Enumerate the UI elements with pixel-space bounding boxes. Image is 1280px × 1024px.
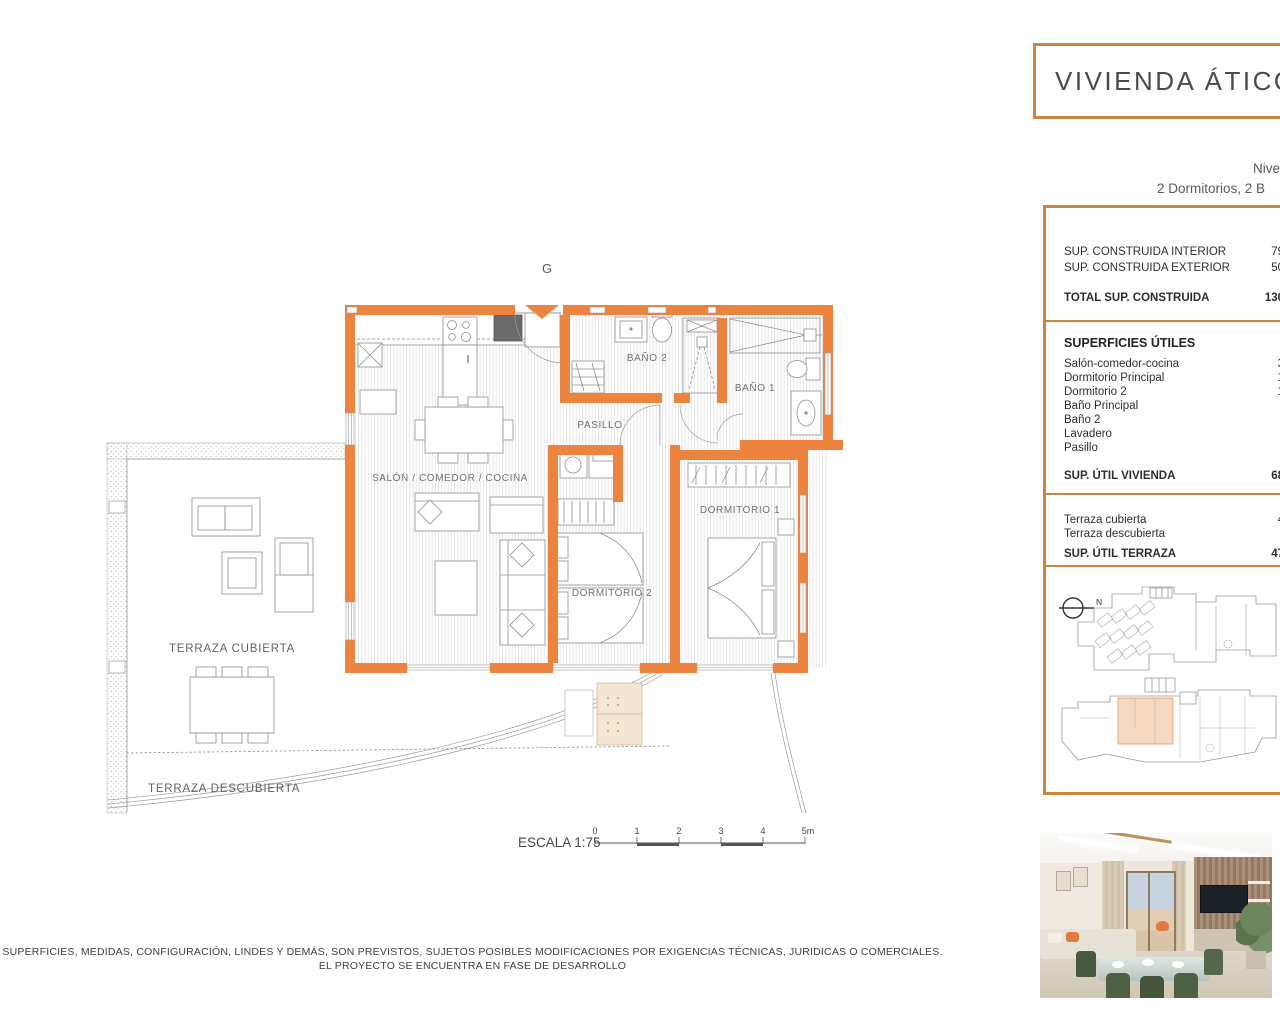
spec-value: 45,1	[1222, 514, 1280, 526]
spec-value: 10,1	[1222, 386, 1280, 398]
spec-row: Baño 23,8	[1064, 414, 1280, 426]
spec-value: 68,58	[1222, 470, 1280, 482]
spec-value: 130,71	[1222, 292, 1280, 304]
scale-tick: 2	[676, 826, 681, 836]
key-plan-lower	[1062, 678, 1276, 762]
laundry	[560, 451, 621, 478]
north-label: N	[1096, 597, 1102, 607]
spec-label: TOTAL SUP. CONSTRUIDA	[1064, 292, 1209, 304]
scale-tick: 5m	[802, 826, 815, 836]
photo-shelf	[1248, 899, 1270, 902]
key-plan-upper	[1078, 587, 1276, 670]
spec-label: SUP. CONSTRUIDA INTERIOR	[1064, 246, 1226, 258]
block-label: G	[542, 261, 552, 276]
useful-heading: SUPERFICIES ÚTILES	[1064, 336, 1280, 350]
room-label-bano2: BAÑO 2	[627, 351, 667, 364]
spec-value: 79,92	[1222, 246, 1280, 258]
room-label-terraza-descubierta: TERRAZA DESCUBIERTA	[148, 783, 300, 795]
spec-row: Dormitorio Principal12,7	[1064, 372, 1280, 384]
room-label-terraza-cubierta: TERRAZA CUBIERTA	[169, 643, 295, 655]
scale-tick: 4	[760, 826, 765, 836]
photo-frame	[1056, 871, 1071, 891]
hall-closet	[572, 361, 604, 393]
spec-value: 50,79	[1222, 262, 1280, 274]
spec-value: 2,1	[1222, 442, 1280, 454]
spec-row: Lavadero1,2	[1064, 428, 1280, 440]
interior-render-photo	[1040, 833, 1272, 998]
scale-bar: ESCALA 1:75 0 1 2 3 4 5m	[518, 826, 814, 850]
divider	[1046, 493, 1280, 495]
spec-row: Terraza descubierta2,3	[1064, 528, 1280, 540]
spec-total-row: SUP. ÚTIL TERRAZA 47,44	[1064, 548, 1280, 560]
spec-row: Pasillo2,1	[1064, 442, 1280, 454]
room-label-bano1: BAÑO 1	[735, 381, 775, 394]
scale-tick: 3	[718, 826, 723, 836]
spec-value: 3,8	[1222, 414, 1280, 426]
terrace-furniture	[190, 498, 313, 743]
photo-sofa-pillow-orange	[1066, 932, 1079, 942]
spec-label: Terraza cubierta	[1064, 514, 1146, 526]
spec-value: 1,2	[1222, 428, 1280, 440]
spec-label: SUP. ÚTIL VIVIENDA	[1064, 470, 1175, 482]
room-label-salon: SALÓN / COMEDOR / COCINA	[372, 471, 528, 484]
photo-window-mullion	[1148, 873, 1150, 951]
spec-label: Pasillo	[1064, 442, 1098, 454]
spec-label: Dormitorio Principal	[1064, 372, 1164, 384]
key-plan: N	[1050, 578, 1278, 786]
spec-value: 2,3	[1222, 528, 1280, 540]
spec-value: 4,6	[1222, 400, 1280, 412]
photo-chair-green	[1140, 976, 1164, 998]
rooms-line: 2 Dormitorios, 2 B	[1157, 181, 1265, 196]
spec-value: 12,7	[1222, 372, 1280, 384]
disclaimer-line1: SUPERFICIES, MEDIDAS, CONFIGURACIÓN, LIN…	[0, 945, 945, 959]
spec-total-row: TOTAL SUP. CONSTRUIDA 130,71	[1064, 292, 1280, 304]
photo-plate	[1172, 961, 1184, 968]
spec-row: Salón-comedor-cocina33,9	[1064, 358, 1280, 370]
terrace-notch	[109, 661, 125, 673]
spec-row: Dormitorio 210,1	[1064, 386, 1280, 398]
title-box: VIVIENDA ÁTICO G	[1033, 43, 1280, 119]
spec-total-row: SUP. ÚTIL VIVIENDA 68,58	[1064, 470, 1280, 482]
photo-chair-green	[1174, 973, 1198, 998]
spec-label: Baño 2	[1064, 414, 1100, 426]
room-label-dormitorio1: DORMITORIO 1	[700, 505, 780, 516]
specs-panel: SUP. CONSTRUIDA INTERIOR 79,92 SUP. CONS…	[1043, 205, 1280, 795]
photo-sofa-pillow	[1048, 933, 1062, 943]
north-arrow	[1059, 598, 1094, 618]
photo-chair-green	[1076, 951, 1096, 977]
floor-plan: G SALÓN / COMEDOR / COCINA PASILLO BAÑO …	[60, 255, 860, 875]
room-label-dormitorio2: DORMITORIO 2	[572, 588, 652, 599]
highlighted-unit	[1118, 698, 1173, 744]
photo-balcony-chair	[1156, 921, 1169, 931]
scale-label: ESCALA 1:75	[518, 835, 601, 850]
spec-label: Baño Principal	[1064, 400, 1138, 412]
spec-label: Lavadero	[1064, 428, 1112, 440]
spec-row: Terraza cubierta45,1	[1064, 514, 1280, 526]
photo-plant-pot	[1246, 951, 1266, 969]
photo-chair-green	[1204, 949, 1223, 975]
photo-frame	[1073, 867, 1088, 887]
page-title: VIVIENDA ÁTICO G	[1036, 66, 1280, 97]
scale-tick: 0	[592, 826, 597, 836]
divider	[1046, 320, 1280, 322]
photo-plate	[1142, 959, 1154, 966]
spec-label: SUP. ÚTIL TERRAZA	[1064, 548, 1176, 560]
spec-row: Baño Principal4,6	[1064, 400, 1280, 412]
disclaimer-line2: EL PROYECTO SE ENCUENTRA EN FASE DE DESA…	[0, 959, 945, 973]
room-label-pasillo: PASILLO	[577, 420, 622, 431]
photo-chair-green	[1106, 973, 1130, 998]
spec-row: SUP. CONSTRUIDA INTERIOR 79,92	[1064, 246, 1280, 258]
photo-plate	[1112, 961, 1124, 968]
disclaimer: SUPERFICIES, MEDIDAS, CONFIGURACIÓN, LIN…	[0, 945, 945, 973]
scale-tick: 1	[634, 826, 639, 836]
spec-value: 33,9	[1222, 358, 1280, 370]
level-line: Nive	[1253, 161, 1280, 176]
divider	[1046, 565, 1280, 567]
terrace-notch	[109, 501, 125, 513]
ac-units	[565, 683, 642, 745]
spec-label: Salón-comedor-cocina	[1064, 358, 1179, 370]
spec-row: SUP. CONSTRUIDA EXTERIOR 50,79	[1064, 262, 1280, 274]
spec-label: Dormitorio 2	[1064, 386, 1127, 398]
photo-plant	[1236, 903, 1272, 955]
photo-shelf	[1248, 881, 1270, 884]
spec-value: 47,44	[1222, 548, 1280, 560]
spec-label: SUP. CONSTRUIDA EXTERIOR	[1064, 262, 1230, 274]
dining-table	[415, 397, 513, 463]
spec-label: Terraza descubierta	[1064, 528, 1165, 540]
